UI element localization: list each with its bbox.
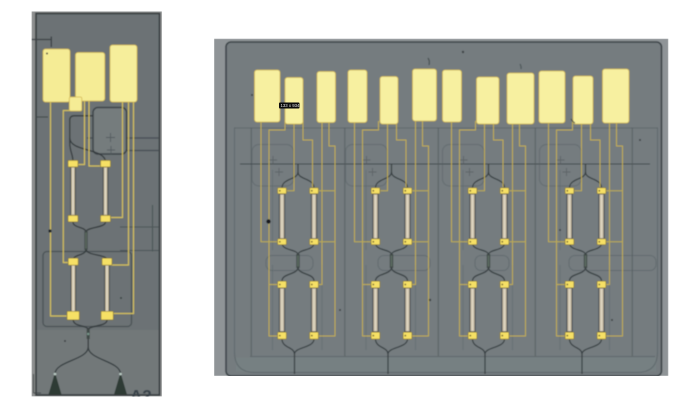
svg-text:133 x 934: 133 x 934	[281, 103, 300, 108]
